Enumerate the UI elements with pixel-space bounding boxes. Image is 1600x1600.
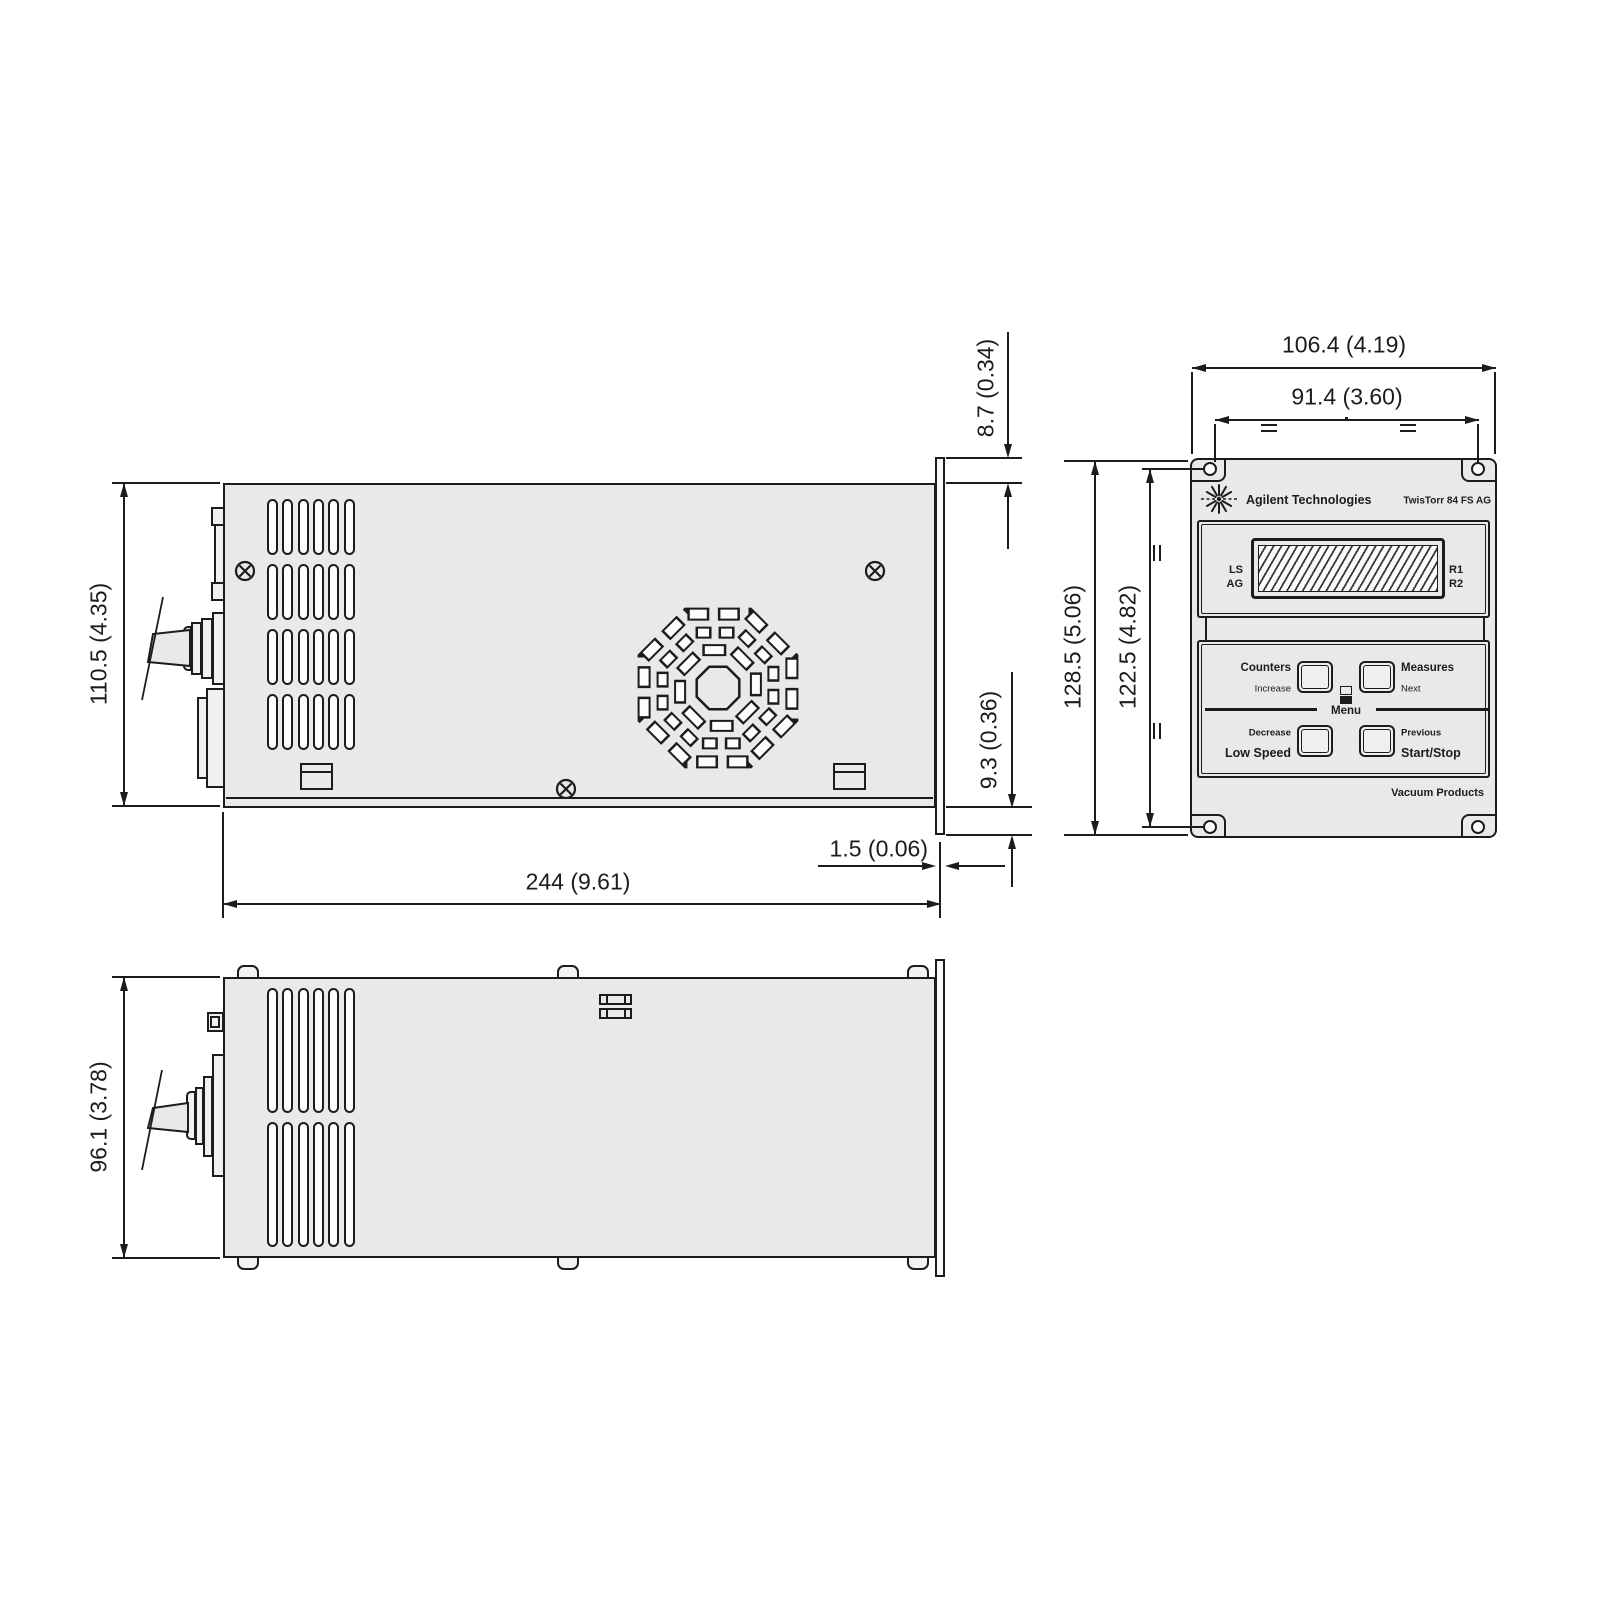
mount-hole	[1203, 820, 1217, 834]
vent-slot	[344, 1122, 355, 1247]
button-decrease-lowspeed	[1297, 725, 1333, 757]
vent-slot	[313, 564, 324, 620]
vent-slot	[298, 694, 309, 750]
fan-grille-icon	[629, 599, 807, 777]
label-counters: Counters	[1241, 662, 1291, 674]
agilent-logo-icon	[1201, 481, 1237, 517]
model-text: TwisTorr 84 FS AG	[1403, 496, 1491, 507]
vent-slot	[313, 629, 324, 685]
dim-hole-span-v: 122.5 (4.82)	[1115, 585, 1142, 709]
lcd-label-ag: AG	[1227, 578, 1244, 590]
lcd-label-r2: R2	[1449, 578, 1463, 590]
vent-slot	[298, 1122, 309, 1247]
arrowhead	[1091, 821, 1099, 835]
vent-slot	[344, 564, 355, 620]
dim-front-height: 128.5 (5.06)	[1060, 585, 1087, 709]
dim-line	[1011, 672, 1013, 794]
ext-line	[112, 482, 220, 484]
vent-slot	[298, 499, 309, 555]
dim-line	[959, 865, 1005, 867]
dim-flange-bottom: 9.3 (0.36)	[976, 691, 1003, 789]
dim-line	[1149, 469, 1151, 827]
small-connector-inner	[210, 1016, 220, 1028]
dim-flange-thickness: 1.5 (0.06)	[830, 836, 928, 863]
screw-icon	[234, 560, 256, 582]
vent-slot	[328, 629, 339, 685]
lower-connector-block	[197, 697, 208, 779]
dim-hole-span-h: 91.4 (3.60)	[1291, 384, 1402, 411]
vent-bar-divider	[606, 994, 608, 1005]
vent-slot	[267, 988, 278, 1113]
vent-slot	[282, 1122, 293, 1247]
vent-slot	[298, 564, 309, 620]
dim-line	[123, 483, 125, 806]
dim-line	[1094, 461, 1096, 835]
vent-slot	[267, 694, 278, 750]
label-next: Next	[1401, 684, 1421, 695]
dim-top-height: 96.1 (3.78)	[86, 1061, 113, 1172]
arrowhead	[1146, 469, 1154, 483]
label-menu: Menu	[1331, 705, 1361, 717]
side-view-bottom-seam	[226, 797, 933, 799]
vent-slot	[282, 629, 293, 685]
foot	[237, 1256, 259, 1270]
center-mark	[1345, 417, 1348, 420]
side-latch-line	[302, 771, 331, 773]
label-vacuum-products: Vacuum Products	[1391, 787, 1484, 799]
section-link-line	[1205, 618, 1207, 642]
arrowhead	[223, 900, 237, 908]
arrowhead	[120, 483, 128, 497]
ext-line	[946, 806, 1032, 808]
dim-line	[223, 903, 941, 905]
vent-slot	[282, 499, 293, 555]
brand-text: Agilent Technologies	[1246, 493, 1371, 507]
side-view-rear-flange	[935, 457, 945, 835]
ext-line	[946, 834, 1032, 836]
lcd-label-ls: LS	[1229, 564, 1243, 576]
equal-mark	[1261, 424, 1277, 426]
lcd-label-r1: R1	[1449, 564, 1463, 576]
vent-slot	[328, 1122, 339, 1247]
arrowhead	[120, 792, 128, 806]
arrowhead	[1091, 461, 1099, 475]
vent-bar-divider	[624, 994, 626, 1005]
vent-slot	[344, 499, 355, 555]
mount-hole	[1471, 820, 1485, 834]
arrowhead	[945, 862, 959, 870]
dim-line	[1011, 849, 1013, 887]
equal-mark	[1153, 545, 1155, 561]
vent-bar-detail	[599, 1008, 632, 1019]
arrowhead	[927, 900, 941, 908]
side-latch	[300, 763, 333, 790]
dim-line	[1007, 497, 1009, 549]
lower-connector-block	[206, 688, 225, 788]
vent-slot	[313, 988, 324, 1113]
label-decrease: Decrease	[1249, 728, 1291, 739]
arrowhead	[1192, 364, 1206, 372]
menu-rule	[1205, 708, 1317, 711]
arrowhead	[120, 1244, 128, 1258]
arrowhead	[1215, 416, 1229, 424]
label-low-speed: Low Speed	[1225, 746, 1291, 760]
top-view-rear-flange	[935, 959, 945, 1277]
menu-rule	[1376, 708, 1488, 711]
vent-slot	[328, 694, 339, 750]
vent-slot	[267, 564, 278, 620]
dim-line	[1007, 332, 1009, 445]
button-counters-increase	[1297, 661, 1333, 693]
vent-slot	[298, 988, 309, 1113]
arrowhead	[1465, 416, 1479, 424]
label-start-stop: Start/Stop	[1401, 746, 1461, 760]
arrowhead	[120, 977, 128, 991]
equal-mark	[1159, 545, 1161, 561]
ext-line	[1477, 424, 1479, 462]
dim-front-width: 106.4 (4.19)	[1282, 332, 1406, 359]
ext-line	[112, 1257, 220, 1259]
foot	[907, 1256, 929, 1270]
arrowhead	[1008, 794, 1016, 808]
dim-line	[1192, 367, 1496, 369]
side-latch	[833, 763, 866, 790]
equal-mark	[1153, 723, 1155, 739]
dim-flange-top: 8.7 (0.34)	[973, 339, 1000, 437]
vent-bar-divider	[606, 1008, 608, 1019]
vent-bar-detail	[599, 994, 632, 1005]
button-measures-next	[1359, 661, 1395, 693]
vent-slot	[267, 1122, 278, 1247]
arrowhead	[1008, 835, 1016, 849]
menu-switch-icon	[1340, 686, 1352, 695]
arrowhead	[1004, 483, 1012, 497]
vent-slot	[313, 499, 324, 555]
vent-slot	[267, 629, 278, 685]
lcd-display	[1251, 538, 1445, 599]
arrowhead	[1146, 813, 1154, 827]
dim-line	[123, 977, 125, 1258]
lcd-hatch	[1258, 545, 1438, 592]
vent-bar-divider	[624, 1008, 626, 1019]
label-measures: Measures	[1401, 662, 1454, 674]
equal-mark	[1400, 430, 1416, 432]
dim-side-width: 244 (9.61)	[526, 869, 631, 896]
label-increase: Increase	[1255, 684, 1291, 695]
vent-slot	[328, 499, 339, 555]
foot	[557, 1256, 579, 1270]
vent-slot	[298, 629, 309, 685]
vent-slot	[344, 694, 355, 750]
screw-icon	[555, 778, 577, 800]
menu-switch-icon-fill	[1340, 696, 1352, 704]
vent-slot	[313, 694, 324, 750]
dim-line	[818, 865, 924, 867]
arrowhead	[922, 862, 936, 870]
ext-line	[1191, 372, 1193, 454]
arrowhead	[1482, 364, 1496, 372]
ext-line	[1064, 834, 1188, 836]
dim-side-height: 110.5 (4.35)	[86, 583, 113, 705]
ext-line	[112, 976, 220, 978]
mount-hole	[1203, 462, 1217, 476]
vent-slot	[282, 694, 293, 750]
vent-slot	[328, 988, 339, 1113]
ext-line	[1494, 372, 1496, 454]
mount-hole	[1471, 462, 1485, 476]
ext-line	[112, 805, 220, 807]
vent-slot	[267, 499, 278, 555]
vent-slot	[328, 564, 339, 620]
equal-mark	[1159, 723, 1161, 739]
dsub-connector-profile	[214, 524, 225, 584]
ext-line	[1214, 424, 1216, 462]
vent-slot	[282, 564, 293, 620]
label-previous: Previous	[1401, 728, 1441, 739]
dimensional-drawing-page: 110.5 (4.35) 8.7 (0.34) 9.3 (0.36) 1.5 (…	[0, 0, 1600, 1600]
vent-slot	[344, 629, 355, 685]
section-link-line	[1483, 618, 1485, 642]
side-latch-line	[835, 771, 864, 773]
vent-slot	[282, 988, 293, 1113]
screw-icon	[864, 560, 886, 582]
arrowhead	[1004, 444, 1012, 458]
equal-mark	[1400, 424, 1416, 426]
power-cable	[135, 1060, 225, 1180]
button-previous-startstop	[1359, 725, 1395, 757]
vent-slot	[344, 988, 355, 1113]
ext-line	[1064, 460, 1188, 462]
vent-slot	[313, 1122, 324, 1247]
equal-mark	[1261, 430, 1277, 432]
